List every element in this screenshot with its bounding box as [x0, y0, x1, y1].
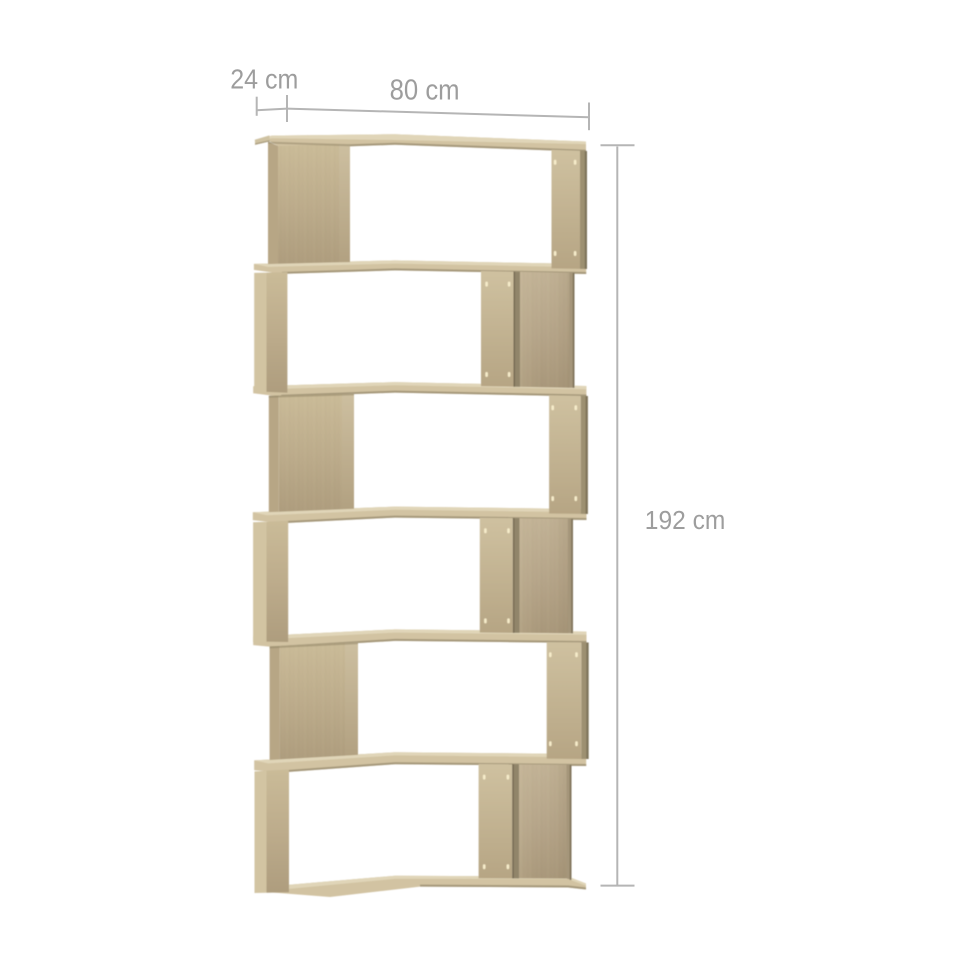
svg-text:192 cm: 192 cm	[645, 507, 726, 535]
svg-text:24 cm: 24 cm	[230, 64, 298, 95]
svg-text:80 cm: 80 cm	[390, 75, 460, 107]
